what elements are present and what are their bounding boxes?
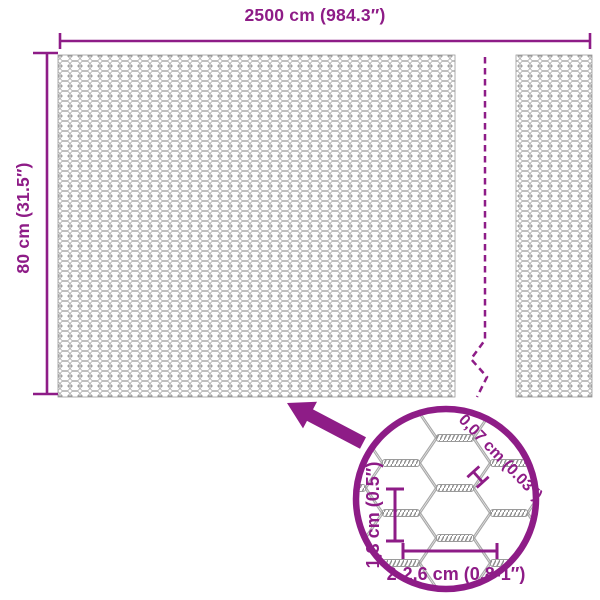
mesh-panel-main (58, 55, 455, 397)
height-dimension-line (33, 53, 58, 394)
width-dimension-line (60, 33, 590, 49)
product-dimension-diagram: 2500 cm (984.3″) 80 cm (31.5″) (0, 0, 600, 600)
height-label: 80 cm (31.5″) (13, 162, 33, 273)
diagram-canvas: 2500 cm (984.3″) 80 cm (31.5″) (0, 0, 600, 600)
break-line (471, 57, 487, 397)
zoom-arrow-icon (287, 402, 366, 449)
mesh-panel-continuation (516, 55, 592, 397)
width-label: 2500 cm (984.3″) (245, 5, 386, 25)
cell-height-label: 1,3 cm (0.5″) (363, 462, 383, 569)
cell-width-label: 2-2,6 cm (0.8-1″) (387, 564, 526, 584)
